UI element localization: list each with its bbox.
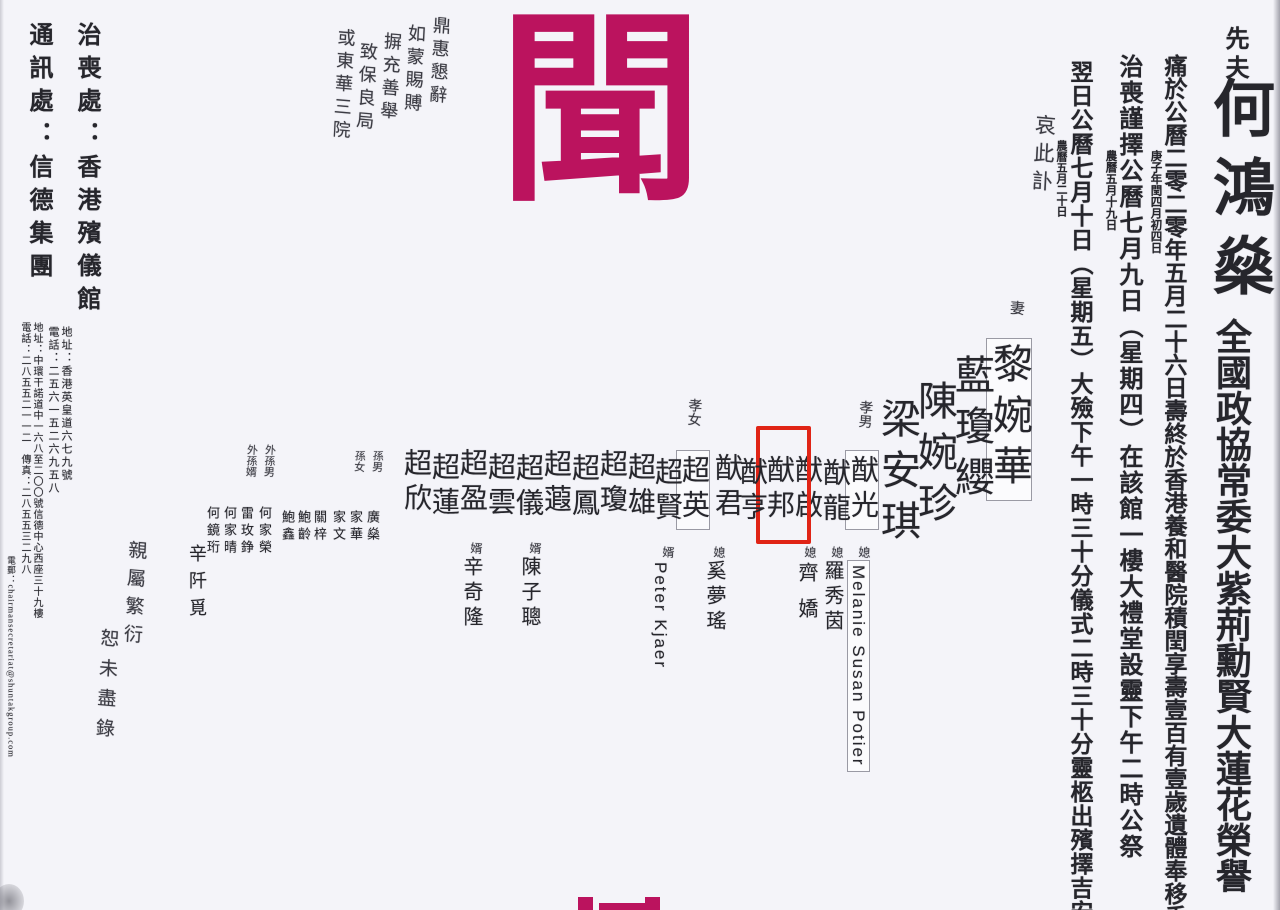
- scan-smudge: [0, 884, 24, 910]
- son-in-law-name: 陳子聰: [519, 556, 539, 631]
- funeral-parlour-address: 地址：香港英皇道六七九號: [60, 326, 71, 482]
- announcement-vigil: 治喪謹擇公曆七月九日（星期四）在該館一樓大禮堂設靈下午二時公祭: [1116, 54, 1140, 860]
- obituary-notice-page: 聞 先夫 何鴻燊 全國政協常委大紫荊勳賢大蓮花榮譽 痛於公曆二零二零年五月二十六…: [0, 0, 1280, 910]
- family-note-line2: 恕未盡錄: [93, 627, 118, 748]
- relative-name: 鮑鑫: [281, 510, 294, 544]
- correspondence-address: 地址：中環干諾道中一六八至二〇〇號信德中心西座三十九樓: [31, 322, 41, 619]
- wife-name: 藍瓊纓: [951, 354, 991, 507]
- announcement-funeral-lunar-note: 農曆五月二十日: [1055, 140, 1066, 217]
- relative-name: 關梓: [313, 510, 326, 544]
- daughter-name: 超儀: [513, 453, 541, 523]
- daughter-name: 超雲: [485, 452, 513, 522]
- relative-name: 辛阡覓: [188, 544, 206, 625]
- daughter-name: 超蓮: [429, 452, 457, 522]
- condolence-line: 致保良局: [355, 41, 378, 134]
- masthead-partial-char: [578, 897, 593, 910]
- son-name: 猷君: [712, 453, 740, 523]
- daughter-in-law-name-deceased: Melanie Susan Potier: [847, 560, 870, 772]
- daughter-in-law-label: 媳: [804, 545, 817, 558]
- relative-name: 鮑齡: [297, 510, 310, 544]
- daughter-in-law-name: 奚夢瑤: [704, 560, 724, 635]
- masthead-partial-char: [599, 903, 651, 910]
- daughter-name: 超雄: [625, 452, 653, 522]
- daughter-in-law-label: 媳: [858, 545, 871, 558]
- family-note-line1: 親屬繁衍: [121, 539, 146, 653]
- son-in-law-name: Peter Kjaer: [652, 562, 669, 669]
- condolence-line: 或東華三院: [331, 27, 355, 143]
- announcement-death-lunar-note: 庚子年閏四月初四日: [1149, 150, 1161, 254]
- son-in-law-label: 婿: [470, 541, 483, 554]
- daughter-name: 超瓊: [597, 449, 625, 519]
- relative-name: 何鏡珩: [206, 506, 219, 557]
- sons-label: 孝男: [856, 399, 871, 428]
- daughter-name: 超蕸: [541, 449, 569, 519]
- son-in-law-label: 婿: [529, 541, 542, 554]
- announcement-vigil-lunar-note: 農曆五月十九日: [1104, 150, 1116, 231]
- masthead-partial-char: [645, 897, 660, 910]
- granddaughter-name: 家文: [332, 510, 345, 544]
- daughter-name: 超賢: [652, 457, 680, 527]
- son-name-deceased: 猷光: [845, 450, 879, 530]
- announcement-funeral: 翌日公曆七月十日（星期五）大殮下午一時三十分儀式二時三十分靈柩出殯擇吉安: [1068, 60, 1091, 910]
- condolence-line: 鼎惠懇辭: [428, 15, 451, 108]
- son-in-law-name: 辛奇隆: [461, 556, 481, 631]
- scan-edge-left: [0, 0, 4, 910]
- scan-edge-right: [1273, 0, 1280, 910]
- daughter-in-law-name: 羅秀茵: [822, 560, 842, 635]
- relative-name: 何家晴: [223, 506, 236, 557]
- wife-name: 梁安琪: [877, 398, 917, 551]
- deceased-name: 何鴻燊: [1206, 76, 1268, 313]
- grandson-label: 孫男: [370, 450, 382, 473]
- granddaughter-name: 家華: [349, 510, 362, 544]
- condolence-line: 如蒙賜賻: [403, 23, 426, 116]
- granddaughter-label: 孫女: [352, 450, 364, 473]
- daughter-name: 超欣: [401, 448, 429, 518]
- funeral-parlour-line: 治喪處：香港殯儀館: [74, 22, 98, 319]
- grandson-name: 廣燊: [366, 510, 379, 544]
- daughter-in-law-name: 齊嬌: [796, 562, 816, 634]
- closing-phrase: 哀此訃: [1030, 113, 1055, 199]
- daughter-name: 超盈: [457, 448, 485, 518]
- maternal-grandson-label: 外孫男: [262, 444, 275, 478]
- maternal-grandson-in-law-label: 外孫婿: [244, 444, 257, 478]
- daughter-in-law-label: 媳: [831, 545, 844, 558]
- masthead-char: 聞: [498, 10, 703, 215]
- deceased-honors: 全國政協常委大紫荊勳賢大蓮花榮譽: [1213, 318, 1249, 894]
- daughter-name: 超鳳: [569, 453, 597, 523]
- condolence-line: 摒充善舉: [379, 31, 402, 124]
- son-name: 猷龍: [820, 458, 848, 528]
- wife-label: 妻: [1008, 299, 1024, 315]
- son-in-law-label: 婿: [662, 545, 675, 558]
- funeral-parlour-phone: 電話：二五六一五二六九五八: [47, 326, 58, 495]
- correspondence-email: 電郵：chairmansecretariat@shuntakgroup.com: [7, 556, 16, 758]
- relative-name: 雷玫錚: [240, 506, 253, 557]
- correspondence-line: 通訊處：信德集團: [26, 22, 50, 286]
- wife-name: 陳婉珍: [914, 380, 954, 533]
- daughters-label: 孝女: [685, 397, 700, 426]
- correspondence-phone: 電話：二八五五二一一二 傳真：二八五五三二九八: [19, 322, 29, 575]
- announcement-death: 痛於公曆二零二零年五月二十六日壽終於香港養和醫院積閏享壽壹百有壹歲遺體奉移香: [1162, 54, 1185, 910]
- daughter-in-law-label: 媳: [713, 545, 726, 558]
- relative-name: 何家榮: [258, 506, 271, 557]
